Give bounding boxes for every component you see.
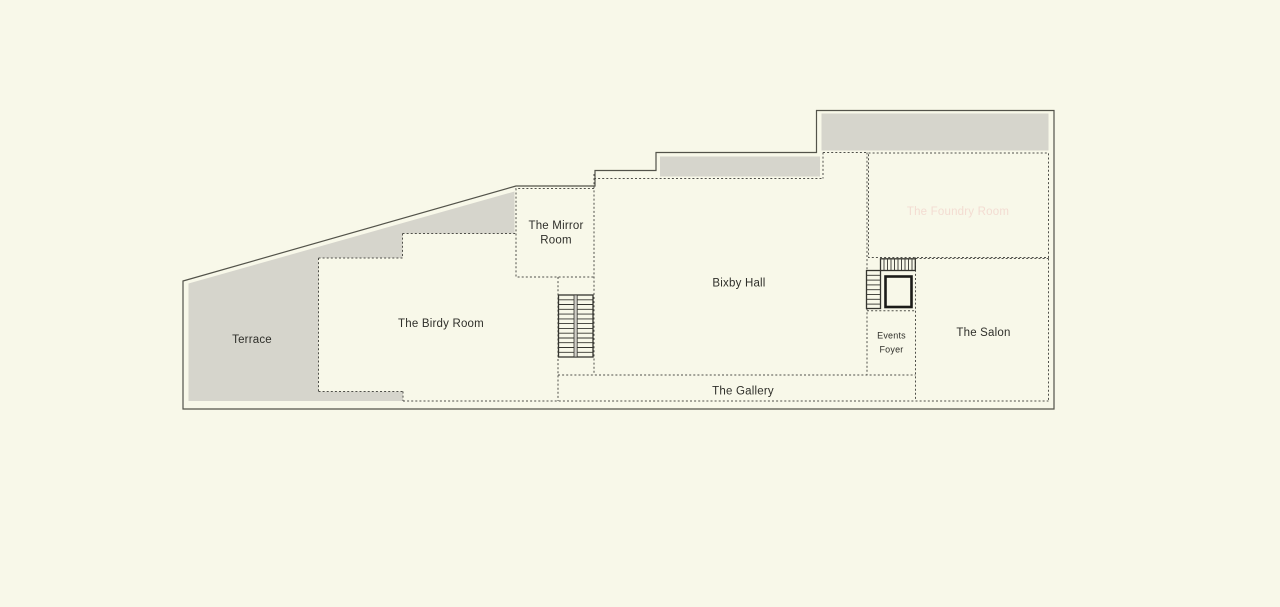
- room-mirror-label-line2: Room: [540, 235, 571, 247]
- room-foundry-label: The Foundry Room: [907, 206, 1009, 218]
- room-bixby-label: Bixby Hall: [712, 278, 765, 290]
- room-birdy-label: The Birdy Room: [398, 318, 484, 330]
- room-gallery-label: The Gallery: [712, 386, 774, 398]
- room-events-foyer-label-line1: Events: [877, 331, 906, 341]
- room-salon-label: The Salon: [956, 327, 1010, 339]
- elevator-icon: [886, 277, 912, 308]
- room-terrace-label: Terrace: [232, 334, 272, 346]
- main-staircase-icon: [559, 295, 594, 357]
- room-mirror-label-line1: The Mirror: [528, 220, 583, 232]
- floor-plan: Terrace The Birdy Room The Mirror Room B…: [0, 0, 1280, 607]
- room-events-foyer-label-line2: Foyer: [879, 345, 903, 355]
- floor-plan-canvas: Terrace The Birdy Room The Mirror Room B…: [0, 0, 1280, 607]
- balcony-strip-mid: [660, 157, 820, 177]
- balcony-strip-top: [822, 114, 1049, 151]
